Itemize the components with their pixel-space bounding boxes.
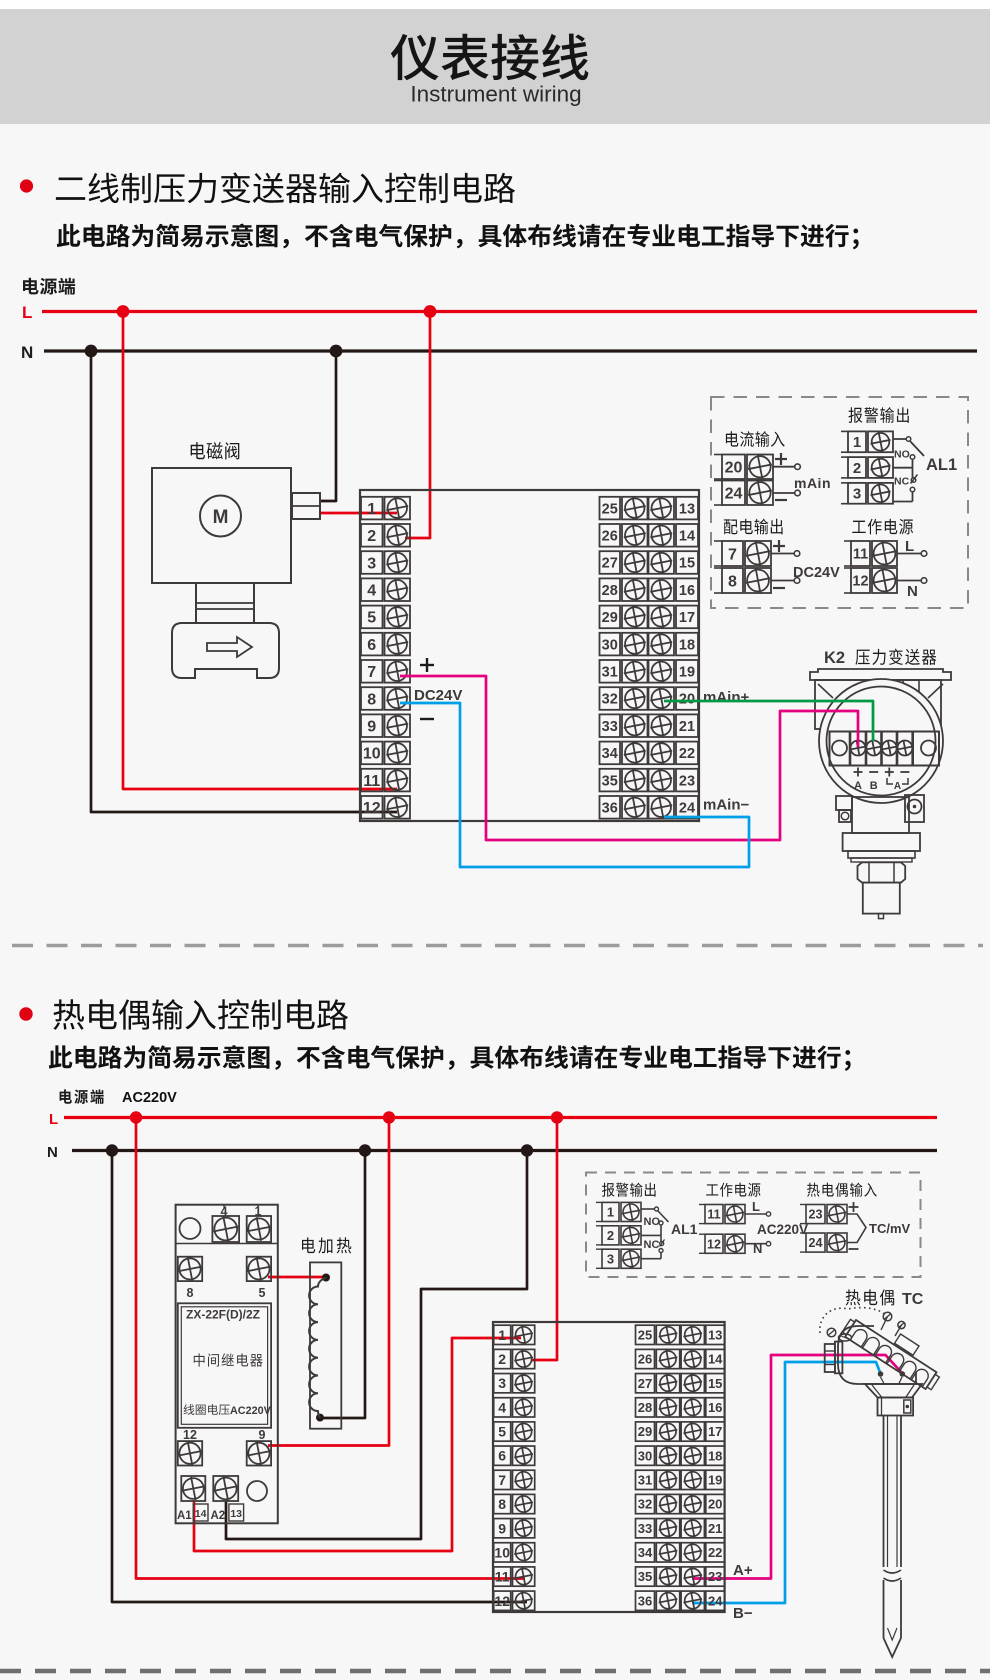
svg-text:4: 4 xyxy=(498,1399,506,1415)
svg-text:26: 26 xyxy=(638,1352,652,1367)
svg-text:18: 18 xyxy=(708,1448,722,1463)
svg-text:N: N xyxy=(21,343,33,362)
svg-text:30: 30 xyxy=(602,637,618,653)
svg-text:N: N xyxy=(907,583,918,600)
svg-text:7: 7 xyxy=(498,1472,506,1488)
svg-text:L: L xyxy=(752,1199,760,1214)
svg-text:5: 5 xyxy=(259,1286,266,1300)
svg-text:2: 2 xyxy=(367,528,376,545)
svg-text:NC: NC xyxy=(644,1239,660,1251)
svg-text:8: 8 xyxy=(187,1286,194,1300)
svg-text:NC: NC xyxy=(894,476,910,488)
svg-text:34: 34 xyxy=(602,746,618,762)
svg-text:9: 9 xyxy=(367,718,376,735)
svg-text:L: L xyxy=(49,1111,58,1128)
svg-text:24: 24 xyxy=(708,1593,723,1608)
svg-text:AL1: AL1 xyxy=(671,1221,698,1237)
svg-text:5: 5 xyxy=(498,1424,506,1440)
svg-text:20: 20 xyxy=(725,460,743,477)
svg-text:N: N xyxy=(753,1241,762,1256)
svg-text:21: 21 xyxy=(679,719,695,735)
svg-text:36: 36 xyxy=(602,801,618,817)
svg-text:13: 13 xyxy=(708,1328,722,1343)
svg-text:AL1: AL1 xyxy=(926,456,957,474)
svg-text:16: 16 xyxy=(708,1400,722,1415)
svg-text:2: 2 xyxy=(607,1228,614,1243)
svg-text:6: 6 xyxy=(498,1448,506,1464)
svg-text:3: 3 xyxy=(367,555,376,572)
svg-text:2: 2 xyxy=(498,1351,506,1367)
svg-text:4: 4 xyxy=(367,582,376,599)
svg-text:32: 32 xyxy=(638,1497,652,1512)
svg-text:36: 36 xyxy=(638,1593,652,1608)
svg-text:NO: NO xyxy=(894,449,910,461)
svg-text:11: 11 xyxy=(363,773,380,790)
svg-text:22: 22 xyxy=(708,1545,722,1560)
svg-text:8: 8 xyxy=(367,691,376,708)
svg-text:L: L xyxy=(22,303,32,322)
svg-text:1: 1 xyxy=(853,434,861,451)
svg-text:33: 33 xyxy=(638,1521,652,1536)
svg-text:20: 20 xyxy=(708,1497,722,1512)
svg-text:28: 28 xyxy=(638,1400,652,1415)
svg-text:TC/mV: TC/mV xyxy=(869,1221,911,1236)
svg-text:3: 3 xyxy=(607,1251,614,1266)
svg-text:B: B xyxy=(870,780,878,792)
svg-text:mAin−: mAin− xyxy=(703,797,750,814)
svg-text:29: 29 xyxy=(638,1424,652,1439)
svg-text:12: 12 xyxy=(852,574,868,590)
svg-text:25: 25 xyxy=(638,1328,652,1343)
svg-text:12: 12 xyxy=(363,800,381,817)
svg-text:10: 10 xyxy=(363,746,381,763)
svg-text:mAin+: mAin+ xyxy=(703,689,750,706)
svg-text:NO: NO xyxy=(644,1216,661,1228)
svg-text:AC220V: AC220V xyxy=(122,1090,177,1106)
svg-text:3: 3 xyxy=(498,1375,506,1391)
svg-text:27: 27 xyxy=(602,556,618,572)
svg-text:31: 31 xyxy=(638,1473,652,1488)
svg-text:L: L xyxy=(905,538,914,555)
svg-text:DC24V: DC24V xyxy=(793,565,840,581)
svg-text:6: 6 xyxy=(367,637,376,654)
svg-text:11: 11 xyxy=(495,1569,510,1585)
svg-text:11: 11 xyxy=(707,1208,720,1222)
svg-text:21: 21 xyxy=(708,1521,722,1536)
svg-text:3: 3 xyxy=(853,486,861,503)
svg-text:7: 7 xyxy=(367,664,376,681)
svg-text:8: 8 xyxy=(498,1496,506,1512)
svg-text:34: 34 xyxy=(638,1545,653,1560)
svg-text:13: 13 xyxy=(679,501,695,517)
svg-text:15: 15 xyxy=(679,556,695,572)
svg-text:A: A xyxy=(854,780,862,792)
svg-text:14: 14 xyxy=(679,529,695,545)
svg-text:19: 19 xyxy=(679,665,695,681)
svg-text:18: 18 xyxy=(679,637,695,653)
svg-text:1: 1 xyxy=(367,501,376,518)
svg-text:9: 9 xyxy=(259,1428,266,1442)
svg-text:26: 26 xyxy=(602,529,618,545)
svg-text:11: 11 xyxy=(853,547,868,563)
svg-text:29: 29 xyxy=(602,610,618,626)
svg-text:25: 25 xyxy=(602,501,618,517)
svg-text:31: 31 xyxy=(602,665,618,681)
svg-text:14: 14 xyxy=(708,1352,723,1367)
svg-text:13: 13 xyxy=(230,1508,242,1520)
svg-text:Instrument wiring: Instrument wiring xyxy=(410,82,581,107)
svg-text:M: M xyxy=(213,507,229,528)
svg-text:K2: K2 xyxy=(824,649,845,667)
svg-text:8: 8 xyxy=(728,573,737,590)
svg-text:33: 33 xyxy=(602,719,618,735)
svg-text:A1: A1 xyxy=(177,1510,192,1522)
svg-text:N: N xyxy=(47,1144,58,1161)
svg-text:24: 24 xyxy=(679,801,695,817)
svg-text:AC220V: AC220V xyxy=(230,1405,272,1417)
svg-text:19: 19 xyxy=(708,1473,722,1488)
svg-text:15: 15 xyxy=(708,1376,722,1391)
svg-text:9: 9 xyxy=(498,1520,506,1536)
svg-text:23: 23 xyxy=(708,1569,722,1584)
svg-text:A+: A+ xyxy=(733,1562,753,1579)
svg-text:2: 2 xyxy=(853,460,861,477)
svg-text:23: 23 xyxy=(679,773,695,789)
svg-text:12: 12 xyxy=(183,1428,197,1442)
svg-text:17: 17 xyxy=(679,610,695,626)
svg-text:B−: B− xyxy=(733,1605,753,1622)
svg-text:35: 35 xyxy=(602,773,618,789)
svg-text:22: 22 xyxy=(679,746,695,762)
svg-text:14: 14 xyxy=(195,1508,207,1520)
svg-text:TC: TC xyxy=(902,1291,924,1308)
svg-text:A2: A2 xyxy=(211,1510,226,1522)
svg-text:23: 23 xyxy=(809,1208,823,1222)
svg-text:16: 16 xyxy=(679,583,695,599)
svg-text:17: 17 xyxy=(708,1424,722,1439)
svg-text:10: 10 xyxy=(494,1544,510,1560)
svg-text:5: 5 xyxy=(367,610,376,627)
svg-text:12: 12 xyxy=(707,1237,721,1251)
svg-text:24: 24 xyxy=(809,1236,823,1250)
svg-text:12: 12 xyxy=(494,1593,510,1609)
svg-text:30: 30 xyxy=(638,1448,652,1463)
svg-text:24: 24 xyxy=(725,486,743,503)
svg-text:A: A xyxy=(894,781,901,792)
svg-text:mAin: mAin xyxy=(794,475,831,491)
svg-text:1: 1 xyxy=(607,1205,614,1220)
svg-text:7: 7 xyxy=(728,546,737,563)
svg-text:27: 27 xyxy=(638,1376,652,1391)
svg-text:DC24V: DC24V xyxy=(414,687,462,704)
svg-text:1: 1 xyxy=(498,1327,506,1343)
svg-text:32: 32 xyxy=(602,692,618,708)
svg-text:ZX-22F(D)/2Z: ZX-22F(D)/2Z xyxy=(186,1308,260,1322)
svg-text:28: 28 xyxy=(602,583,618,599)
svg-text:35: 35 xyxy=(638,1569,652,1584)
